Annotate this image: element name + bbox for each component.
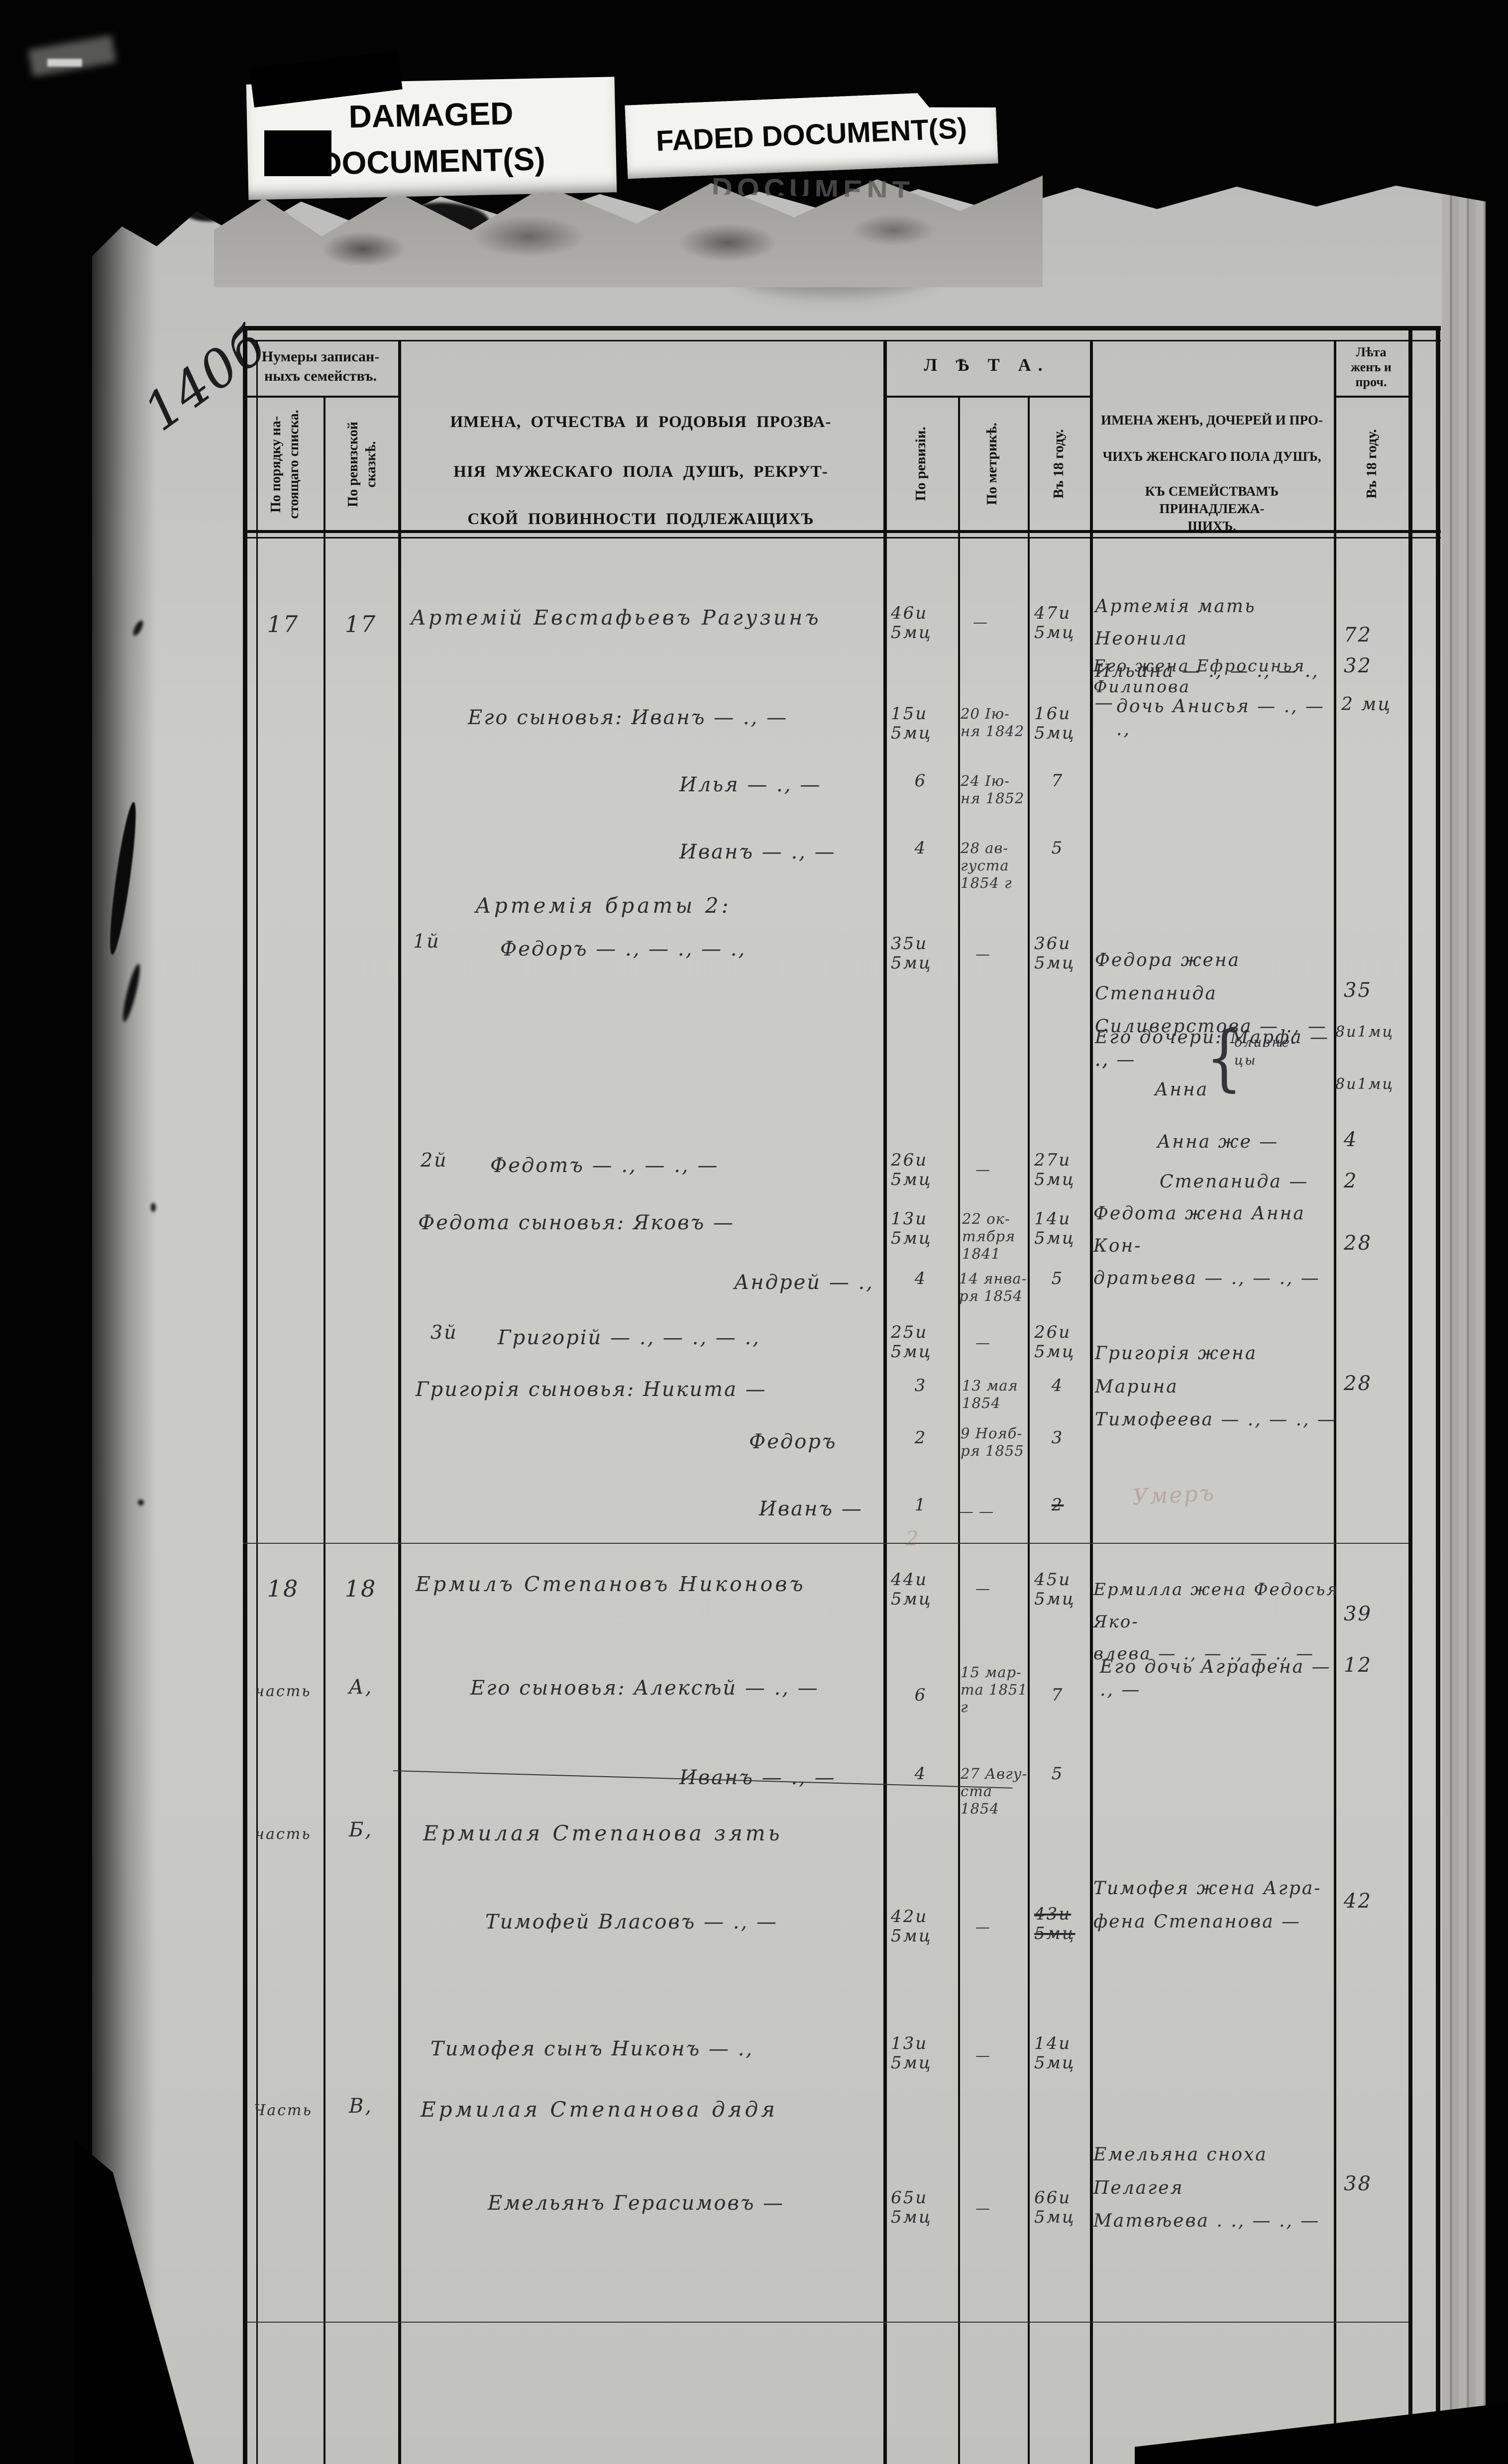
female-age: 28 xyxy=(1344,1372,1406,1395)
age-by-metrics: 27 Авгу- ста 1854 xyxy=(961,1765,1028,1817)
entry-female: Степанида — xyxy=(1160,1171,1329,1193)
part-letter: В, xyxy=(323,2094,398,2119)
age-by-metrics: 9 Нояб- ря 1855 xyxy=(961,1425,1028,1460)
section-header-uncle: Ермилая Степанова дядя xyxy=(421,2096,918,2123)
header-female-title-line3: КЪ СЕМЕЙСТВАМЪ ПРИНАДЛЕЖА- xyxy=(1095,483,1329,518)
age-by-revision: 15и 5мц xyxy=(891,704,956,743)
age-by-metrics: — xyxy=(975,946,1020,963)
age-by-revision: 35и 5мц xyxy=(891,934,956,973)
age-in-18: 5 xyxy=(1030,1764,1085,1784)
header-male-title-line2: НІЯ МУЖЕСКАГО ПОЛА ДУШЪ, РЕКРУТ- xyxy=(403,461,878,483)
entry-female: Анна же — xyxy=(1157,1131,1326,1154)
header-male-title-line1: ИМЕНА, ОТЧЕСТВА И РОДОВЫЯ ПРОЗВА- xyxy=(403,412,878,433)
table-border-top xyxy=(243,326,1441,330)
age-by-metrics: 14 янва- ря 1854 xyxy=(959,1270,1029,1305)
age-by-revision: 13и 5мц xyxy=(891,2034,956,2073)
entry-female: Тимофея жена Агра- фена Степанова — xyxy=(1093,1872,1337,1938)
age-in-18: 66и 5мц xyxy=(1034,2188,1091,2227)
entry-male-name: Артемій Евстафьевъ Рагузинъ xyxy=(411,605,883,631)
document-page: 140б Нумеры записан- ныхъ семействъ. По … xyxy=(92,182,1486,2464)
age-by-revision: 25и 5мц xyxy=(891,1323,956,1362)
entry-male-name: Иванъ — ., — xyxy=(679,1765,888,1791)
table-border-top-inner xyxy=(243,340,1441,341)
section-separator xyxy=(246,2322,1408,2323)
age-in-18: 7 xyxy=(1030,771,1085,791)
female-age: 4 xyxy=(1344,1128,1406,1151)
age-by-revision: 46и 5мц xyxy=(891,604,956,643)
age-in-18: 14и 5мц xyxy=(1034,2034,1091,2073)
ink-dot xyxy=(138,1500,144,1505)
table-border-right-inner xyxy=(1408,326,1412,2464)
column-rule xyxy=(1028,396,1030,2464)
header-bottom-rule-inner xyxy=(243,537,1441,538)
age-by-metrics: — xyxy=(973,614,1023,631)
column-rule xyxy=(398,340,401,2464)
age-by-metrics: — xyxy=(975,1919,1020,1936)
family-number-revision: 18 xyxy=(323,1574,398,1604)
entry-female: дочь Анисья — ., — ., xyxy=(1116,695,1340,741)
table-border-left-inner xyxy=(256,340,258,2464)
header-rule xyxy=(883,396,1090,398)
age-in-18: 14и 5мц xyxy=(1034,1209,1091,1248)
column-rule xyxy=(323,396,325,2464)
book-gutter-shadow xyxy=(92,182,157,2464)
age-by-revision: 6 xyxy=(896,771,946,791)
header-female-title-line1: ИМЕНА ЖЕНЪ, ДОЧЕРЕЙ И ПРО- xyxy=(1095,412,1329,429)
section-header-son-in-law: Ермилая Степанова зять xyxy=(423,1820,921,1847)
age-in-18: 36и 5мц xyxy=(1034,934,1091,973)
age-by-metrics: — xyxy=(975,2047,1020,2064)
family-separator xyxy=(243,1543,1408,1544)
twins-note: близне- цы xyxy=(1234,1034,1324,1070)
age-in-18: 5 xyxy=(1030,839,1085,858)
tape-remnant xyxy=(264,130,331,176)
part-letter: Б, xyxy=(323,1818,398,1843)
entry-male-name: Григорія сыновья: Никита — xyxy=(416,1377,883,1402)
entry-male-name: Федота сыновья: Яковъ — xyxy=(418,1210,881,1236)
header-rule xyxy=(243,396,398,398)
age-in-18-struck: 2 xyxy=(1030,1496,1085,1515)
age-in-18: 26и 5мц xyxy=(1034,1323,1091,1362)
header-female-in-18: Въ 18 году. xyxy=(1340,400,1404,528)
female-age: 2 xyxy=(1344,1170,1406,1192)
header-col-revision-tale: По ревизской сказкѣ. xyxy=(330,400,395,529)
age-by-metrics: 28 ав- густа 1854 г xyxy=(961,840,1028,891)
entry-female: Анна xyxy=(1155,1078,1304,1101)
entry-male-name: Емельянъ Герасимовъ — xyxy=(488,2191,896,2216)
entry-ordinal: 1й xyxy=(413,929,440,954)
column-rule xyxy=(1090,340,1093,2464)
age-by-revision: 3 xyxy=(896,1376,946,1395)
age-by-revision: 6 xyxy=(896,1686,946,1705)
entry-ordinal: 2й xyxy=(421,1148,448,1173)
entry-male-name: Иванъ — xyxy=(759,1497,888,1522)
age-by-revision: 26и 5мц xyxy=(891,1151,956,1189)
header-col-in-18: Въ 18 году. xyxy=(1032,400,1086,528)
age-by-metrics: — xyxy=(975,1580,1020,1598)
entry-male-name: Андрей — ., xyxy=(734,1270,888,1295)
scanner-smudge xyxy=(47,59,82,67)
entry-male-name: Илья — ., — xyxy=(679,772,888,798)
entry-ordinal: 3й xyxy=(431,1320,458,1345)
entry-female: Григорія жена Марина Тимофеева — ., — .,… xyxy=(1095,1337,1339,1437)
faded-document-label: FADED DOCUMENT(S) xyxy=(625,90,998,179)
header-male-title-line3: СКОЙ ПОВИННОСТИ ПОДЛЕЖАЩИХЪ xyxy=(403,509,878,530)
column-rule xyxy=(958,396,960,2464)
age-by-metrics: — xyxy=(975,2200,1020,2217)
entry-female: Емельяна сноха Пелагея Матвѣева . ., — .… xyxy=(1093,2139,1337,2238)
entry-male-name: Его сыновья: Иванъ — ., — xyxy=(468,705,881,731)
age-by-metrics: 22 ок- тября 1841 xyxy=(962,1210,1027,1262)
female-age: 12 xyxy=(1344,1654,1406,1677)
female-age: 72 xyxy=(1344,624,1406,646)
entry-male-name: Тимофей Власовъ — ., — xyxy=(485,1910,883,1935)
entry-female: Его дочь Аграфена — ., — xyxy=(1100,1656,1339,1702)
scanned-document-canvas: 140б Нумеры записан- ныхъ семействъ. По … xyxy=(0,0,1508,2464)
family-number-list: 18 xyxy=(243,1574,323,1604)
entry-female: Федота жена Анна Кон- дратьева — ., — .,… xyxy=(1093,1198,1337,1294)
age-in-18: 47и 5мц xyxy=(1034,604,1091,643)
entry-male-name: Его сыновья: Алексѣй — ., — xyxy=(470,1676,883,1701)
female-age: 42 xyxy=(1344,1890,1406,1913)
part-letter: А, xyxy=(323,1675,398,1700)
family-number-revision: 17 xyxy=(323,610,398,639)
column-rule xyxy=(883,340,887,2464)
age-by-revision: 42и 5мц xyxy=(891,1907,956,1946)
part-label: Часть xyxy=(243,2101,323,2120)
faded-label-text: FADED DOCUMENT(S) xyxy=(655,111,968,157)
age-by-revision: 4 xyxy=(896,1764,946,1784)
female-age: 8и1мц xyxy=(1335,1024,1407,1041)
female-age: 28 xyxy=(1344,1232,1406,1255)
table-border-right xyxy=(1436,326,1440,2464)
age-in-18: 5 xyxy=(1030,1269,1085,1288)
age-in-18: 7 xyxy=(1030,1686,1085,1705)
age-by-revision: 13и 5мц xyxy=(891,1209,956,1248)
damaged-label-text: DAMAGED DOCUMENT(S) xyxy=(318,90,546,187)
age-by-revision: 1 xyxy=(896,1496,946,1515)
header-family-numbers: Нумеры записан- ныхъ семействъ. xyxy=(243,347,398,386)
section-header-brothers: Артемія браты 2: xyxy=(475,892,923,919)
family-number-list: 17 xyxy=(243,610,323,639)
entry-male-name: Григорій — ., — ., — ., xyxy=(498,1325,886,1351)
age-by-metrics: 15 мар- та 1851 г xyxy=(961,1664,1028,1715)
age-in-18: 45и 5мц xyxy=(1034,1570,1091,1609)
entry-male-name: Федоръ xyxy=(749,1429,888,1455)
age-in-18: 27и 5мц xyxy=(1034,1151,1091,1189)
header-female-title-line4: ЩИХЪ. xyxy=(1095,518,1329,535)
entry-male-name: Федотъ — ., — ., — xyxy=(490,1153,883,1178)
entry-male-name: Ермилъ Степановъ Никоновъ xyxy=(416,1571,888,1597)
female-age: 32 xyxy=(1344,654,1406,677)
age-by-metrics: — xyxy=(975,1161,1020,1178)
female-age: 35 xyxy=(1344,979,1406,1002)
female-age: 2 мц xyxy=(1341,694,1408,715)
header-years-group: Л Ѣ Т А. xyxy=(883,353,1090,377)
header-female-title-line2: ЧИХЪ ЖЕНСКАГО ПОЛА ДУШЪ, xyxy=(1095,448,1329,465)
ghost-number: 2 xyxy=(906,1526,920,1552)
ghost-died-note: Умеръ xyxy=(1132,1480,1216,1512)
age-in-18: 3 xyxy=(1030,1428,1085,1448)
age-in-18-struck: 43и 5мц xyxy=(1034,1905,1091,1943)
age-in-18: 4 xyxy=(1030,1376,1085,1395)
female-age: 39 xyxy=(1344,1603,1406,1625)
age-by-revision: 4 xyxy=(896,839,946,858)
header-col-by-revision: По ревизіи. xyxy=(889,400,953,528)
entry-female: Его жена Ефросинья Филипова xyxy=(1093,655,1345,697)
female-age: 8и1мц xyxy=(1335,1076,1407,1093)
header-female-years-group: Лѣта женъ и проч. xyxy=(1334,345,1408,390)
age-by-revision: 44и 5мц xyxy=(891,1570,956,1609)
part-label: часть xyxy=(243,1825,323,1844)
age-by-revision: 65и 5мц xyxy=(891,2188,956,2227)
header-col-by-metrics: По метрикѣ. xyxy=(962,400,1023,528)
ink-speckle xyxy=(182,197,236,221)
entry-male-name: Тимофея сынъ Никонъ — ., xyxy=(431,2036,878,2062)
ink-dot xyxy=(151,1203,156,1212)
age-by-metrics: 13 мая 1854 xyxy=(962,1377,1027,1412)
scanner-smudge xyxy=(28,35,116,77)
header-rule xyxy=(1334,396,1408,398)
age-in-18: 16и 5мц xyxy=(1034,704,1091,743)
page-stack-edge xyxy=(1442,182,1486,2464)
table-border-left xyxy=(243,326,247,2464)
age-by-revision: 2 xyxy=(896,1428,946,1448)
entry-male-name: Иванъ — ., — xyxy=(679,840,888,865)
entry-male-name: Федоръ — ., — ., — ., xyxy=(500,937,888,962)
age-by-revision: 4 xyxy=(896,1269,946,1288)
header-col-order: По порядку на- стоящаго списка. xyxy=(250,400,320,529)
female-age: 38 xyxy=(1344,2172,1406,2195)
age-by-metrics: 24 Ію- ня 1852 xyxy=(961,772,1028,807)
part-label: часть xyxy=(243,1682,323,1701)
ghost-label-text: DOCUMENT xyxy=(712,172,915,200)
age-by-metrics: — xyxy=(975,1334,1020,1352)
age-by-metrics: — — xyxy=(959,1503,1029,1520)
age-by-metrics: 20 Ію- ня 1842 xyxy=(961,705,1028,740)
